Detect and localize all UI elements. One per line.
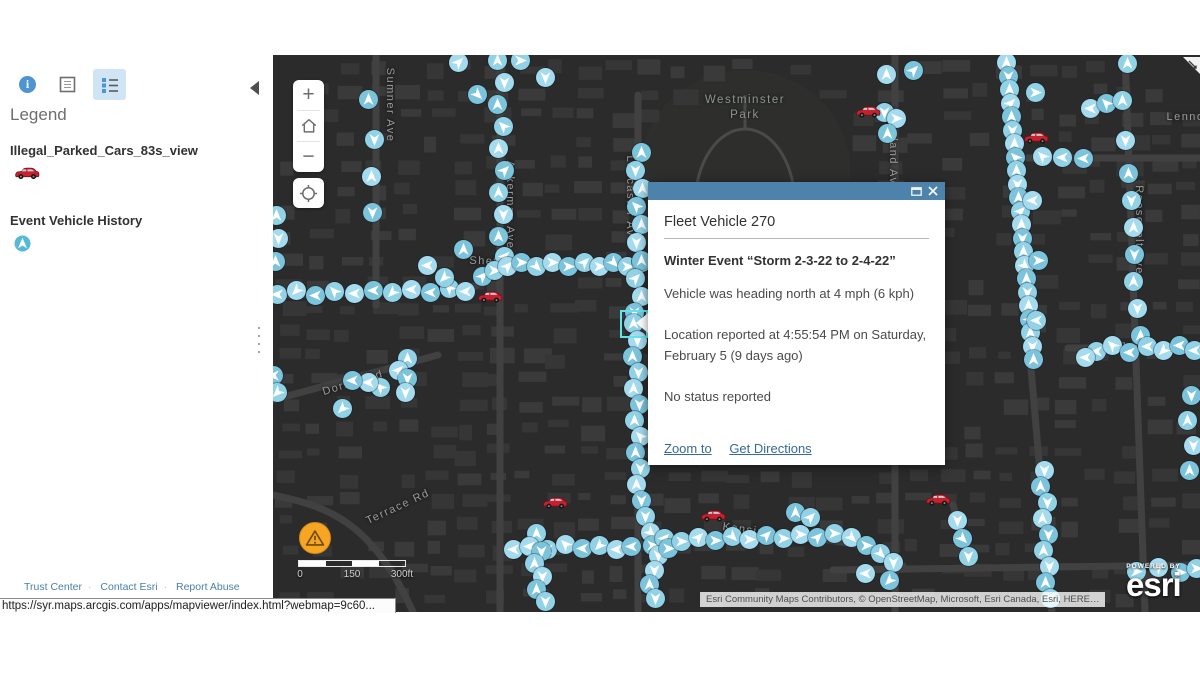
- street-label: Lennox: [1166, 111, 1200, 123]
- vehicle-history-marker[interactable]: [1118, 55, 1137, 73]
- link-separator: ·: [164, 581, 168, 593]
- vehicle-history-marker[interactable]: [1128, 299, 1147, 318]
- popup-divider: [664, 238, 929, 239]
- vehicle-history-marker[interactable]: [959, 547, 978, 566]
- vehicle-history-marker[interactable]: [1026, 83, 1045, 102]
- vehicle-history-marker[interactable]: [878, 124, 897, 143]
- vehicle-history-marker[interactable]: [495, 73, 514, 92]
- zoom-control-stack: + −: [293, 80, 324, 172]
- collapse-panel-arrow-icon[interactable]: [250, 81, 259, 95]
- map-attribution: Esri Community Maps Contributors, © Open…: [700, 592, 1105, 607]
- popup-status-line: No status reported: [664, 386, 929, 407]
- vehicle-history-marker[interactable]: [1024, 350, 1043, 369]
- vehicle-history-marker[interactable]: [421, 283, 440, 302]
- vehicle-history-marker[interactable]: [1124, 272, 1143, 291]
- vehicle-history-marker[interactable]: [345, 284, 364, 303]
- scale-label-300ft: 300ft: [391, 569, 413, 580]
- vehicle-history-marker[interactable]: [1074, 149, 1093, 168]
- vehicle-history-marker[interactable]: [1120, 343, 1139, 362]
- vehicle-history-marker[interactable]: [359, 90, 378, 109]
- vehicle-history-marker[interactable]: [1122, 191, 1141, 210]
- vehicle-history-marker[interactable]: [774, 529, 793, 548]
- vehicle-history-marker[interactable]: [1178, 411, 1197, 430]
- vehicle-history-marker[interactable]: [1187, 559, 1200, 578]
- vehicle-history-marker[interactable]: [494, 205, 513, 224]
- vehicle-history-marker[interactable]: [273, 252, 285, 271]
- vehicle-history-marker[interactable]: [418, 256, 437, 275]
- zoom-in-button[interactable]: +: [293, 80, 324, 110]
- data-table-icon-glyph: [59, 76, 76, 93]
- vehicle-history-marker[interactable]: [402, 280, 421, 299]
- layer-name-illegal-parked-cars: Illegal_Parked_Cars_83s_view: [10, 143, 198, 158]
- vehicle-history-marker[interactable]: [396, 383, 415, 402]
- vehicle-history-marker[interactable]: [489, 139, 508, 158]
- data-table-icon[interactable]: [51, 69, 84, 100]
- parked-car-marker[interactable]: [855, 104, 881, 124]
- parked-car-marker[interactable]: [1023, 130, 1049, 150]
- scale-label-0: 0: [297, 569, 303, 580]
- map-canvas[interactable]: Sumner AveAckerman AveShefford StDorset …: [273, 55, 1200, 612]
- vehicle-history-marker[interactable]: [1182, 386, 1200, 405]
- red-car-icon: [14, 165, 40, 186]
- vehicle-history-marker[interactable]: [273, 229, 288, 248]
- vehicle-history-marker[interactable]: [627, 233, 646, 252]
- vehicle-history-marker[interactable]: [1029, 251, 1048, 270]
- locate-icon: [299, 184, 318, 203]
- parked-car-marker[interactable]: [477, 289, 503, 309]
- feature-popup: Fleet Vehicle 270 Winter Event “Storm 2-…: [648, 182, 945, 465]
- vehicle-history-marker[interactable]: [306, 286, 325, 305]
- park-label: WestminsterPark: [705, 93, 785, 123]
- esri-logo: POWERED BY esri: [1126, 563, 1181, 600]
- vehicle-history-marker[interactable]: [622, 537, 641, 556]
- vehicle-history-marker[interactable]: [456, 282, 475, 301]
- scale-bar-segments: [298, 560, 406, 567]
- popup-titlebar: [648, 182, 945, 200]
- direction-arrow-marker-icon: [14, 235, 31, 257]
- locate-button[interactable]: [293, 178, 324, 208]
- vehicle-history-marker[interactable]: [1023, 191, 1042, 210]
- home-button[interactable]: [293, 111, 324, 141]
- vehicle-history-marker[interactable]: [536, 592, 555, 611]
- layer-name-event-vehicle-history: Event Vehicle History: [10, 213, 142, 228]
- popup-event-heading: Winter Event “Storm 2-3-22 to 2-4-22”: [664, 253, 929, 268]
- app-window: i Legend Illegal_Parked_Cars_8: [0, 0, 1200, 675]
- street-label: Sumner Ave: [384, 68, 396, 143]
- vehicle-history-marker[interactable]: [1119, 164, 1138, 183]
- popup-pointer: [636, 313, 648, 333]
- legend-list-icon[interactable]: [93, 69, 126, 100]
- close-popup-icon[interactable]: [928, 186, 938, 196]
- popup-heading-line: Vehicle was heading north at 4 mph (6 kp…: [664, 283, 929, 304]
- vehicle-history-marker[interactable]: [1116, 131, 1135, 150]
- vehicle-history-marker[interactable]: [454, 240, 473, 259]
- legend-title: Legend: [10, 105, 67, 125]
- scale-bar: 0 150 300ft: [298, 560, 406, 581]
- vehicle-history-marker[interactable]: [362, 167, 381, 186]
- zoom-out-button[interactable]: −: [293, 142, 324, 172]
- vehicle-history-marker[interactable]: [511, 55, 530, 70]
- vehicle-history-marker[interactable]: [1113, 91, 1132, 110]
- browser-status-bar: https://syr.maps.arcgis.com/apps/mapview…: [0, 598, 396, 613]
- parked-car-marker[interactable]: [925, 492, 951, 512]
- vehicle-history-marker[interactable]: [489, 227, 508, 246]
- contact-esri-link[interactable]: Contact Esri: [100, 581, 157, 593]
- vehicle-history-marker[interactable]: [1076, 348, 1095, 367]
- link-separator: ·: [88, 581, 92, 593]
- info-icon[interactable]: i: [11, 69, 44, 100]
- vehicle-history-marker[interactable]: [1184, 436, 1200, 455]
- vehicle-history-marker[interactable]: [536, 68, 555, 87]
- legend-panel: i Legend Illegal_Parked_Cars_8: [0, 55, 273, 613]
- corner-edit-widget[interactable]: [1183, 57, 1200, 74]
- vehicle-history-marker[interactable]: [1027, 311, 1046, 330]
- parked-car-marker[interactable]: [542, 495, 568, 515]
- popup-title: Fleet Vehicle 270: [664, 214, 929, 230]
- panel-toolbar: i: [0, 65, 273, 105]
- dock-popup-icon[interactable]: [911, 187, 922, 196]
- vehicle-history-marker[interactable]: [365, 130, 384, 149]
- panel-footer-links: Trust Center· Contact Esri· Report Abuse: [18, 581, 246, 593]
- map-warning-button[interactable]: [299, 522, 331, 554]
- esri-brand-text: esri: [1126, 570, 1181, 600]
- vehicle-history-marker[interactable]: [1125, 245, 1144, 264]
- parked-car-marker[interactable]: [700, 508, 726, 528]
- legend-list-icon-glyph: [101, 77, 119, 93]
- vehicle-history-marker[interactable]: [488, 55, 507, 70]
- vehicle-history-marker[interactable]: [1185, 341, 1200, 360]
- vehicle-history-marker[interactable]: [626, 161, 645, 180]
- panel-resize-handle[interactable]: [256, 327, 262, 353]
- popup-location-line: Location reported at 4:55:54 PM on Satur…: [664, 324, 929, 366]
- vehicle-history-marker[interactable]: [632, 143, 651, 162]
- vehicle-history-marker[interactable]: [273, 206, 286, 225]
- report-abuse-link[interactable]: Report Abuse: [176, 581, 240, 593]
- vehicle-history-marker[interactable]: [363, 203, 382, 222]
- vehicle-history-marker[interactable]: [877, 65, 896, 84]
- vehicle-history-marker[interactable]: [646, 589, 665, 608]
- zoom-to-link[interactable]: Zoom to: [664, 441, 712, 456]
- warning-triangle-icon: [304, 528, 326, 548]
- home-icon: [300, 117, 318, 135]
- vehicle-history-marker[interactable]: [489, 183, 508, 202]
- vehicle-history-marker[interactable]: [856, 564, 875, 583]
- vehicle-history-marker[interactable]: [488, 95, 507, 114]
- vehicle-history-marker[interactable]: [1124, 218, 1143, 237]
- vehicle-history-marker[interactable]: [1180, 461, 1199, 480]
- vehicle-history-marker[interactable]: [343, 371, 362, 390]
- info-icon-glyph: i: [19, 76, 36, 93]
- scale-label-150: 150: [344, 569, 361, 580]
- get-directions-link[interactable]: Get Directions: [729, 441, 811, 456]
- trust-center-link[interactable]: Trust Center: [24, 581, 82, 593]
